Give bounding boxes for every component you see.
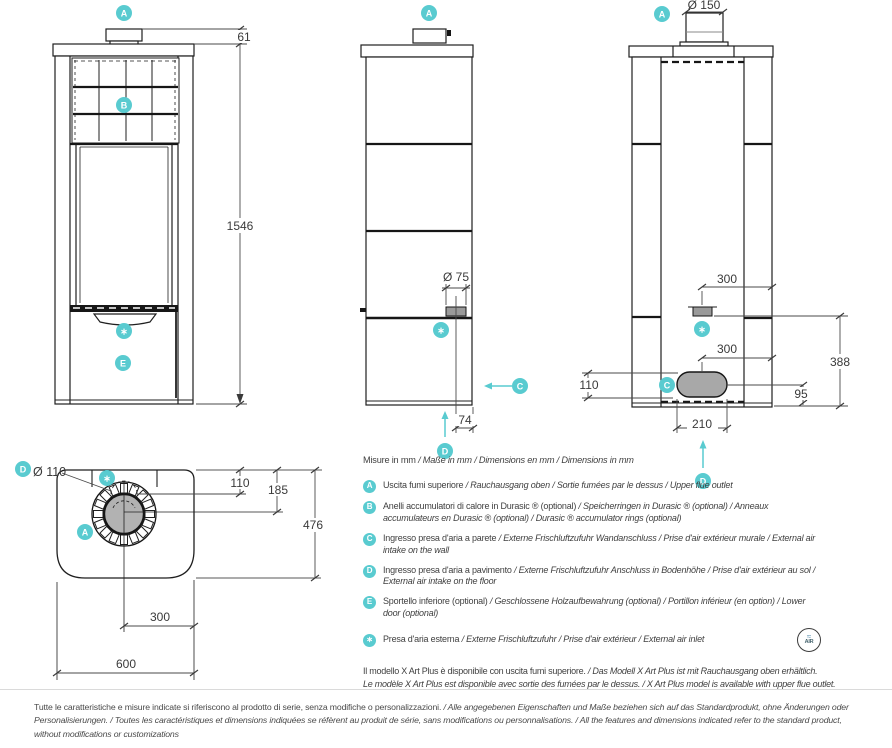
legend-air-primary: Presa d'aria esterna [383, 634, 459, 644]
legend: Misure in mm / Maße in mm / Dimensions e… [363, 455, 821, 691]
legend-e-primary: Sportello inferiore (optional) [383, 596, 488, 606]
svg-text:C: C [517, 381, 524, 391]
legend-air-translations: / Externe Frischluftzufuhr / Prise d'air… [459, 634, 704, 644]
note-translations: / Das Modell X Art Plus ist mit Rauchaus… [586, 666, 818, 676]
top-cap [53, 44, 194, 56]
legend-item-e: E Sportello inferiore (optional) / Gesch… [363, 596, 821, 620]
legend-text-air: Presa d'aria esterna / Externe Frischluf… [383, 634, 776, 646]
dim-label-110-rear: 110 [579, 378, 598, 392]
svg-text:B: B [121, 100, 128, 110]
legend-c-primary: Ingresso presa d'aria a parete [383, 533, 496, 543]
badge-e-front: E [115, 355, 131, 371]
dim-top-flue-to-back: 110 [137, 467, 256, 497]
badge-d-top: D [15, 461, 31, 477]
svg-text:A: A [426, 8, 433, 18]
footer-primary: Tutte le caratteristiche e misure indica… [34, 702, 441, 712]
flue-stub-side [413, 29, 446, 43]
svg-text:A: A [659, 9, 666, 19]
note-primary: Il modello X Art Plus è disponibile con … [363, 666, 586, 676]
svg-text:C: C [664, 380, 671, 390]
dim-label-1546: 1546 [227, 219, 254, 233]
svg-text:∗: ∗ [103, 474, 111, 484]
legend-badge-c: C [363, 533, 376, 546]
dim-label-d75: Ø 75 [443, 270, 469, 284]
legend-text-e: Sportello inferiore (optional) / Geschlo… [383, 596, 821, 620]
units-note: Misure in mm / Maße in mm / Dimensions e… [363, 455, 821, 465]
side-view: Ø 75 74 A ∗ C [360, 5, 528, 459]
legend-item-c: C Ingresso presa d'aria a parete / Exter… [363, 533, 821, 557]
front-view: 61 1546 A B ∗ E [53, 5, 258, 407]
floor-intake-arrow-side [442, 411, 449, 437]
legend-b-primary: Anelli accumulatori di calore in Durasic… [383, 501, 576, 511]
legend-a-primary: Uscita fumi superiore [383, 480, 463, 490]
dim-label-476: 476 [303, 518, 323, 532]
svg-text:D: D [20, 464, 27, 474]
dim-label-d110: Ø 110 [33, 465, 66, 479]
badge-air-rear: ∗ [694, 321, 710, 337]
floor-intake-oval [677, 372, 727, 397]
note-line2: Le modèle X Art Plus est disponible avec… [363, 679, 835, 689]
dim-label-300-wall: 300 [717, 272, 737, 286]
stove-dimension-sheet: 61 1546 A B ∗ E [0, 0, 892, 748]
svg-text:∗: ∗ [698, 325, 706, 335]
dim-front-total-height: 1546 [196, 218, 258, 407]
legend-badge-air: ∗ [363, 634, 376, 647]
dim-top-width: 600 [53, 582, 198, 680]
footer-divider [0, 689, 892, 690]
air-inlet-icon: ≈AIR [797, 628, 821, 652]
legend-text-b: Anelli accumulatori di calore in Durasic… [383, 501, 821, 525]
legend-badge-b: B [363, 501, 376, 514]
flue-stub-rear [686, 13, 723, 42]
wall-intake-connector-rear [693, 307, 712, 316]
legend-badge-a: A [363, 480, 376, 493]
dim-label-110-top: 110 [230, 476, 249, 490]
badge-air-front: ∗ [116, 323, 132, 339]
legend-text-c: Ingresso presa d'aria a parete / Externe… [383, 533, 821, 557]
legend-item-air: ∗ Presa d'aria esterna / Externe Frischl… [363, 628, 821, 652]
svg-text:∗: ∗ [437, 326, 445, 336]
legend-d-primary: Ingresso presa d'aria a pavimento [383, 565, 512, 575]
legend-a-translations: / Rauchausgang oben / Sortie fumées par … [463, 480, 732, 490]
legend-badge-d: D [363, 565, 376, 578]
badge-air-top: ∗ [99, 470, 115, 486]
dim-label-74: 74 [458, 413, 472, 427]
legend-item-d: D Ingresso presa d'aria a pavimento / Ex… [363, 565, 821, 589]
legend-text-d: Ingresso presa d'aria a pavimento / Exte… [383, 565, 821, 589]
svg-text:E: E [120, 358, 126, 368]
dim-label-210: 210 [692, 417, 712, 431]
units-primary: Misure in mm [363, 455, 416, 465]
dim-label-600: 600 [116, 657, 136, 671]
legend-text-a: Uscita fumi superiore / Rauchausgang obe… [383, 480, 821, 493]
dim-label-185: 185 [268, 483, 288, 497]
units-translations: / Maße in mm / Dimensions en mm / Dimens… [416, 455, 634, 465]
badge-c-rear: C [659, 377, 675, 393]
badge-c-side: C [512, 378, 528, 394]
rear-view: Ø 150 300 300 388 [572, 0, 858, 489]
svg-text:∗: ∗ [120, 327, 128, 337]
legend-badge-e: E [363, 596, 376, 609]
legend-item-a: A Uscita fumi superiore / Rauchausgang o… [363, 480, 821, 493]
badge-a-rear: A [654, 6, 670, 22]
air-icon-label: AIR [805, 640, 814, 646]
model-availability-note: Il modello X Art Plus è disponibile con … [363, 665, 846, 691]
dim-label-95: 95 [794, 387, 808, 401]
footer-disclaimer: Tutte le caratteristiche e misure indica… [34, 701, 862, 741]
badge-b-front: B [116, 97, 132, 113]
dim-label-d150: Ø 150 [688, 0, 721, 12]
svg-text:A: A [121, 8, 128, 18]
svg-text:A: A [82, 527, 89, 537]
dim-label-300-top: 300 [150, 610, 170, 624]
dim-label-300-floor: 300 [717, 342, 737, 356]
top-view: Ø 110 110 185 476 [15, 461, 331, 680]
badge-air-side: ∗ [433, 322, 449, 338]
flue-stub [106, 29, 142, 41]
wall-intake-arrow [484, 383, 512, 390]
badge-a-side: A [421, 5, 437, 21]
legend-item-b: B Anelli accumulatori di calore in Duras… [363, 501, 821, 525]
dim-label-388: 388 [830, 355, 850, 369]
dim-label-61: 61 [237, 30, 251, 44]
badge-a-top: A [77, 524, 93, 540]
badge-a-front: A [116, 5, 132, 21]
dim-top-flue-center: 185 [262, 467, 294, 515]
